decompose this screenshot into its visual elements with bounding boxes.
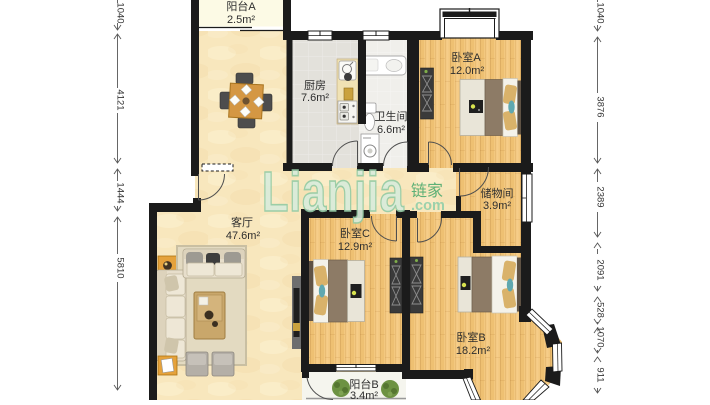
svg-text:卫生间: 卫生间 [375,109,408,123]
svg-text:1040: 1040 [595,2,606,23]
svg-text:12.0m²: 12.0m² [450,65,485,77]
svg-text:7.6m²: 7.6m² [301,92,329,104]
svg-text:阳台A: 阳台A [226,0,256,13]
svg-text:528: 528 [595,302,606,318]
svg-text:卧室B: 卧室B [456,330,485,344]
svg-text:2389: 2389 [595,186,606,207]
svg-text:客厅: 客厅 [231,215,253,229]
svg-text:1040: 1040 [115,2,126,23]
svg-text:3.9m²: 3.9m² [483,200,511,212]
svg-text:Lianjia: Lianjia [262,159,405,223]
svg-text:12.9m²: 12.9m² [338,241,373,253]
svg-text:厨房: 厨房 [304,79,326,92]
svg-text:3.4m²: 3.4m² [350,390,378,400]
svg-text:2.5m²: 2.5m² [227,14,255,26]
svg-text:.com: .com [411,198,445,214]
svg-text:储物间: 储物间 [481,186,514,200]
svg-text:18.2m²: 18.2m² [456,345,491,357]
svg-text:卧室A: 卧室A [451,50,481,64]
svg-text:3876: 3876 [595,96,606,117]
svg-text:47.6m²: 47.6m² [226,230,261,242]
svg-text:4121: 4121 [115,89,126,110]
svg-text:卧室C: 卧室C [340,226,370,240]
svg-text:1070: 1070 [595,326,606,347]
svg-text:阳台B: 阳台B [349,377,378,391]
svg-text:1444: 1444 [115,182,126,203]
svg-text:5810: 5810 [115,257,126,278]
svg-text:2091: 2091 [595,259,606,280]
svg-text:911: 911 [595,367,606,382]
svg-text:6.6m²: 6.6m² [377,124,405,136]
